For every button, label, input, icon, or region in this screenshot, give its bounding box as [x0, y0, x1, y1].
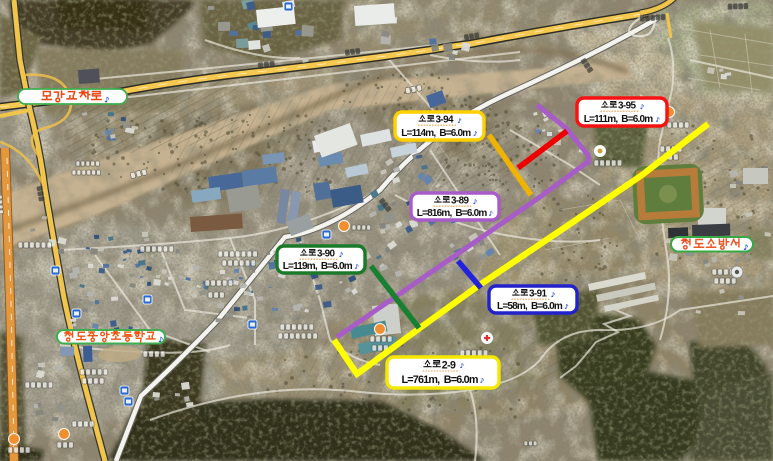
svg-text:L=111m, B=6.0m: L=111m, B=6.0m [584, 114, 654, 125]
svg-text:2-9: 2-9 [442, 359, 456, 371]
svg-text:3-95: 3-95 [618, 101, 636, 112]
svg-text:3-89: 3-89 [451, 196, 469, 207]
svg-text:L=761m, B=6.0m: L=761m, B=6.0m [401, 374, 477, 386]
svg-text:L=816m, B=6.0m: L=816m, B=6.0m [417, 208, 488, 219]
svg-text:3-90: 3-90 [317, 249, 335, 260]
svg-text:3-91: 3-91 [529, 289, 547, 300]
svg-text:L=114m, B=6.0m: L=114m, B=6.0m [401, 128, 471, 139]
svg-text:L=58m, B=6.0m: L=58m, B=6.0m [497, 301, 563, 312]
svg-text:L=119m, B=6.0m: L=119m, B=6.0m [283, 261, 353, 272]
svg-text:3-94: 3-94 [436, 115, 454, 126]
